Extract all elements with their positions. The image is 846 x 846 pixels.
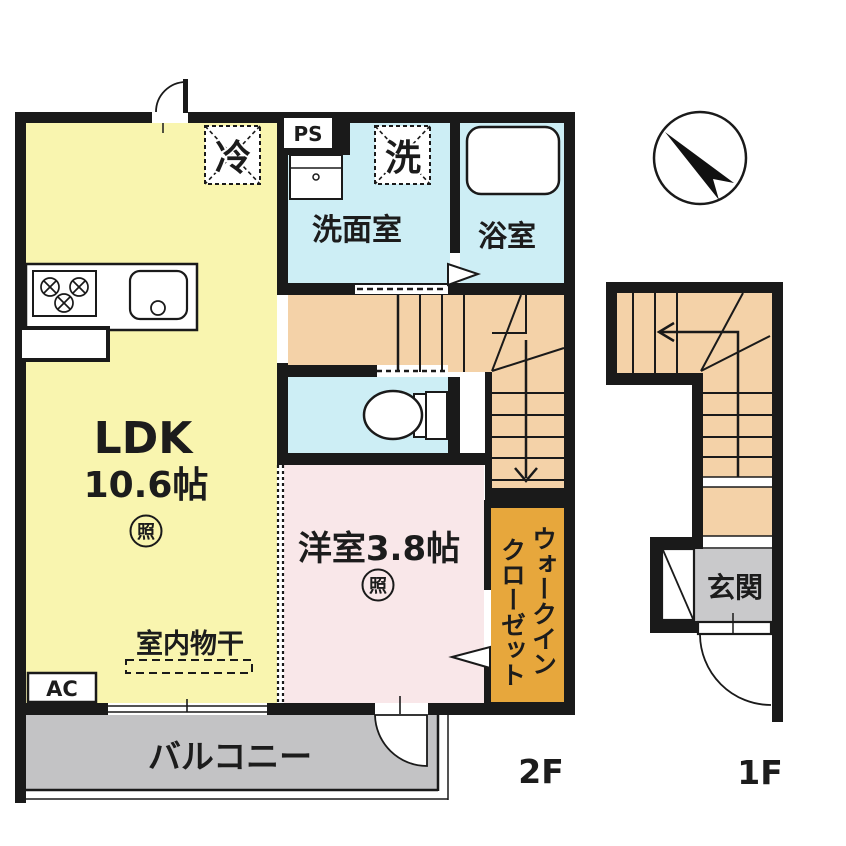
walk-in-closet-label-line1: ウォークイン	[529, 526, 558, 676]
svg-text:照: 照	[369, 576, 387, 597]
wash-basin-icon	[290, 155, 342, 199]
ldk-light-symbol-icon: 照	[131, 516, 162, 547]
front-door-leaf-icon	[698, 622, 771, 634]
kitchen-lower-cabinet-icon	[20, 328, 108, 360]
washroom-label: 洗面室	[312, 213, 402, 248]
stairs-1f-landing	[703, 487, 772, 536]
ps-label: PS	[293, 122, 322, 146]
entry-door-leaf	[183, 79, 188, 113]
ldk-size-label: 10.6帖	[84, 465, 209, 506]
floor-plan-drawing: ウォークイン クローゼット 冷 PS 洗	[0, 0, 846, 846]
washing-machine-label: 洗	[385, 138, 421, 179]
ac-label: AC	[46, 677, 78, 701]
refrigerator-label: 冷	[215, 138, 251, 179]
niche	[460, 377, 485, 453]
washing-machine-space: 洗	[375, 126, 430, 184]
entry-opening	[152, 112, 188, 123]
bathroom-label: 浴室	[478, 219, 536, 253]
western-room-light-symbol-icon: 照	[363, 570, 394, 601]
hallway	[288, 295, 398, 365]
floor-1f-label: 1F	[737, 753, 783, 792]
stairs-2f-top-run	[398, 295, 564, 372]
entrance-label: 玄関	[707, 571, 763, 604]
toilet-icon	[364, 391, 447, 439]
bathtub-icon	[467, 127, 559, 194]
refrigerator-space: 冷	[205, 126, 260, 184]
ldk-label: LDK	[94, 413, 195, 464]
stairs-2f-down-run	[492, 372, 564, 488]
walk-in-closet-label-line2: クローゼット	[498, 537, 527, 687]
floor-2f-label: 2F	[518, 752, 564, 791]
sink-drain-icon	[151, 301, 165, 315]
balcony-label: バルコニー	[148, 737, 312, 776]
north-arrow-icon	[654, 112, 746, 204]
svg-text:照: 照	[137, 522, 155, 543]
indoor-drying-label: 室内物干	[136, 628, 244, 660]
western-room-label: 洋室3.8帖	[298, 529, 460, 569]
floor-plan-page: ウォークイン クローゼット 冷 PS 洗	[0, 0, 846, 846]
